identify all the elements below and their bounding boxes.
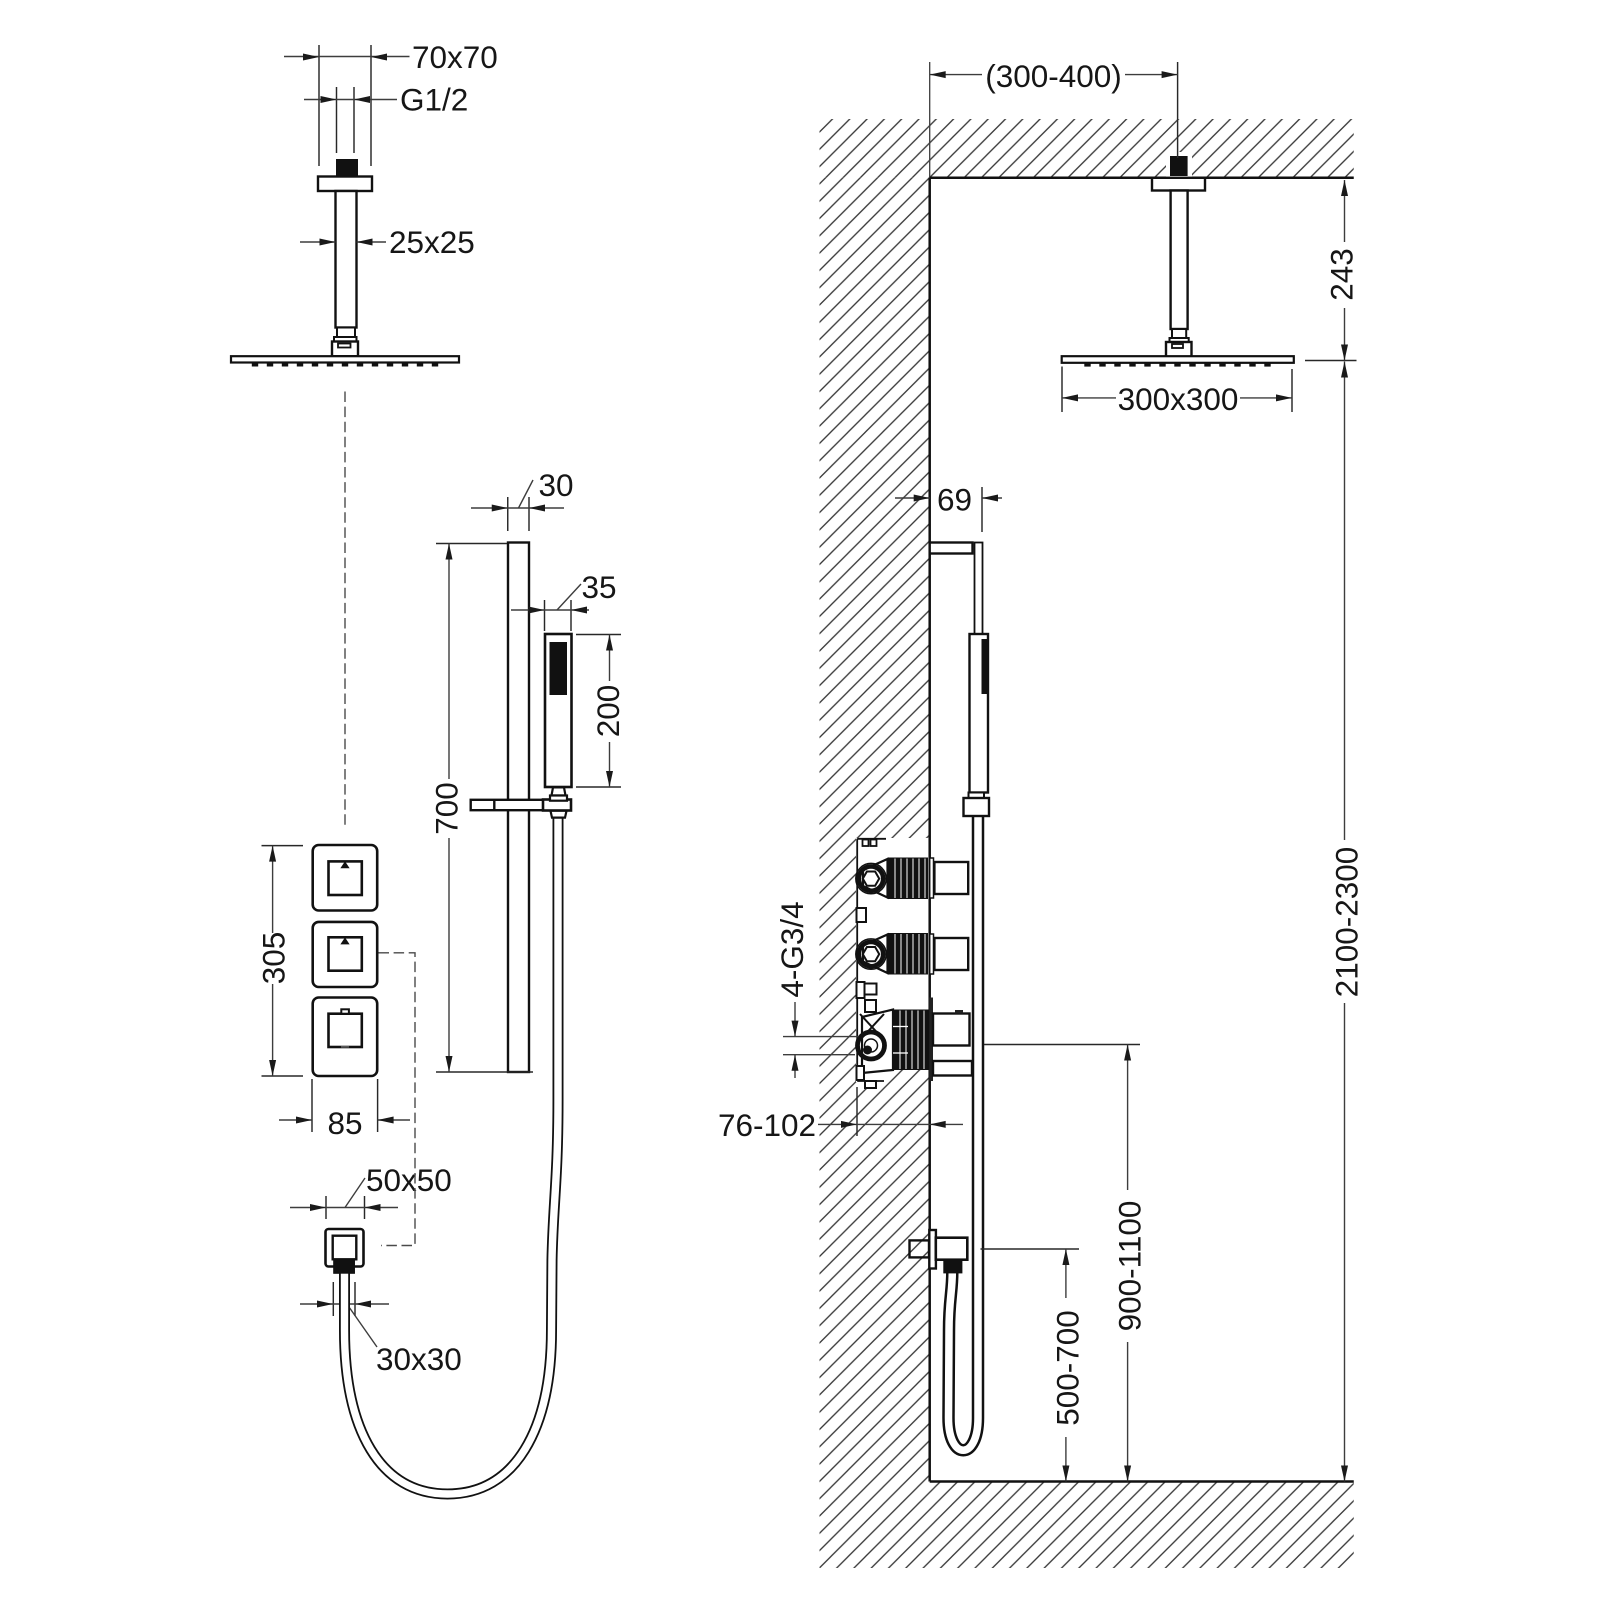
svg-text:(300-400): (300-400) — [985, 58, 1122, 94]
svg-text:305: 305 — [256, 932, 292, 985]
svg-text:85: 85 — [327, 1105, 362, 1141]
svg-text:30x30: 30x30 — [376, 1341, 462, 1377]
svg-text:25x25: 25x25 — [389, 224, 475, 260]
svg-text:700: 700 — [429, 782, 465, 835]
svg-text:200: 200 — [590, 685, 626, 738]
svg-text:300x300: 300x300 — [1118, 381, 1239, 417]
svg-text:900-1100: 900-1100 — [1112, 1201, 1148, 1332]
svg-text:2100-2300: 2100-2300 — [1329, 847, 1365, 998]
svg-text:G1/2: G1/2 — [400, 82, 468, 118]
svg-text:70x70: 70x70 — [412, 39, 498, 75]
svg-text:35: 35 — [582, 569, 617, 605]
svg-text:69: 69 — [937, 482, 972, 518]
svg-text:243: 243 — [1324, 248, 1360, 301]
svg-text:50x50: 50x50 — [366, 1162, 452, 1198]
svg-text:500-700: 500-700 — [1050, 1310, 1086, 1426]
svg-text:76-102: 76-102 — [718, 1107, 816, 1143]
svg-text:30: 30 — [539, 467, 574, 503]
svg-text:4-G3/4: 4-G3/4 — [774, 901, 810, 997]
